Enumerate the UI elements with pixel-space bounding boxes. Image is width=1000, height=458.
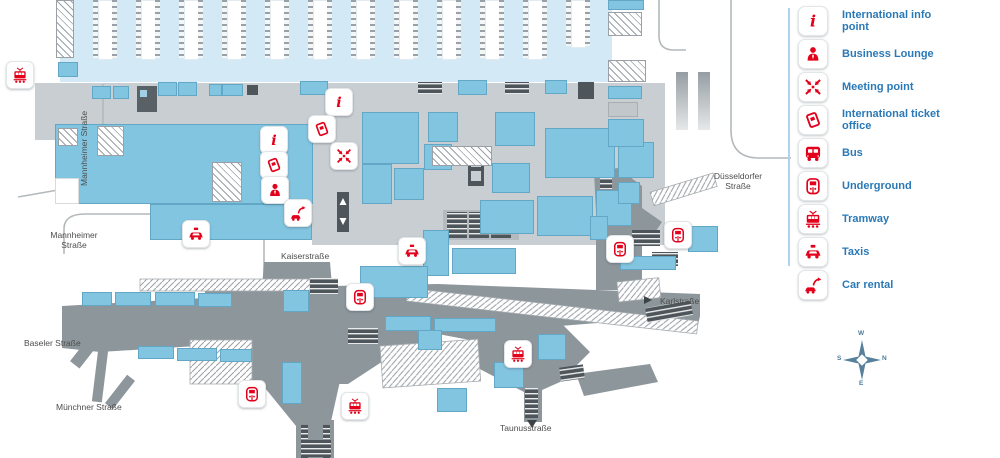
tramway-icon-badge — [504, 340, 532, 368]
platform-strip — [98, 0, 113, 60]
ramp-block — [676, 72, 688, 130]
blue-block — [155, 292, 195, 306]
blue-block — [82, 292, 112, 306]
underground-icon — [611, 240, 629, 258]
rail-track — [284, 0, 289, 58]
taxi-icon — [803, 242, 823, 262]
platform-strip — [184, 0, 199, 60]
blue-block — [92, 86, 111, 99]
rail-track — [585, 0, 590, 46]
blue-block — [608, 86, 642, 99]
info-icon: i — [803, 11, 823, 31]
legend-item-tramway: Tramway — [798, 204, 998, 234]
car-rental-icon — [798, 270, 828, 300]
info-icon-badge: i — [325, 88, 353, 116]
underground-icon — [669, 226, 687, 244]
platform-strip — [356, 0, 371, 60]
tramway-icon — [346, 397, 364, 415]
tramway-icon-badge — [341, 392, 369, 420]
legend-item-underground: Underground — [798, 171, 998, 201]
legend-item-info: iInternational info point — [798, 6, 998, 36]
ticket-office-icon-badge — [260, 151, 288, 179]
blue-block — [608, 119, 644, 147]
meeting-point-icon-badge — [330, 142, 358, 170]
blue-block — [434, 318, 496, 332]
business-lounge-icon — [803, 44, 823, 64]
blue-block — [283, 290, 309, 312]
underground-icon-badge — [606, 235, 634, 263]
platform-strip — [227, 0, 242, 60]
blue-block — [209, 84, 222, 96]
bus-icon — [798, 138, 828, 168]
hatch-block — [58, 128, 78, 146]
street-label: Mannheimer Straße — [44, 231, 104, 250]
blue-block — [437, 388, 467, 412]
bus-icon — [803, 143, 823, 163]
blue-block — [688, 226, 718, 252]
legend-item-label: Business Lounge — [842, 48, 958, 61]
taxi-icon-badge — [398, 237, 426, 265]
compass-bottom: E — [859, 380, 863, 387]
blue-block — [618, 142, 654, 178]
street-label: Taunusstraße — [500, 424, 584, 434]
underground-icon — [351, 288, 369, 306]
rail-track — [499, 0, 504, 58]
platform-label — [84, 60, 126, 68]
ticket-office-icon — [803, 110, 823, 130]
taxi-icon — [187, 225, 205, 243]
hatch-block — [212, 162, 242, 202]
blue-block — [538, 334, 566, 360]
blue-block — [300, 81, 328, 95]
blue-block — [480, 200, 534, 234]
car-rental-icon — [803, 275, 823, 295]
blue-block — [222, 84, 243, 96]
street-label: Karlstraße — [660, 297, 720, 307]
legend-item-bus: Bus — [798, 138, 998, 168]
legend: iInternational info pointBusiness Lounge… — [798, 6, 998, 303]
legend-item-label: International ticket office — [842, 108, 958, 133]
blue-block — [618, 182, 640, 204]
platform-label — [127, 60, 169, 68]
platform-strip — [485, 0, 500, 60]
platform-label — [170, 60, 212, 68]
tramway-icon-badge — [6, 61, 34, 89]
gray-block — [608, 102, 638, 117]
compass-right: N — [882, 355, 887, 362]
blue-block — [545, 80, 567, 94]
tramway-icon — [803, 209, 823, 229]
legend-item-ticket-office: International ticket office — [798, 105, 998, 135]
platform-strip — [313, 0, 328, 60]
underground-icon — [798, 171, 828, 201]
blue-block — [178, 82, 197, 96]
meeting-point-icon — [798, 72, 828, 102]
platform-label — [557, 60, 599, 68]
street-label: Kaiserstraße — [281, 252, 351, 262]
street-label: Düsseldorfer Straße — [708, 172, 768, 191]
platform-strip — [442, 0, 457, 60]
blue-block — [418, 330, 442, 350]
car-rental-icon-badge — [284, 199, 312, 227]
blue-block — [537, 196, 593, 236]
legend-item-taxi: Taxis — [798, 237, 998, 267]
blue-block — [394, 168, 424, 200]
legend-item-label: Taxis — [842, 246, 958, 259]
white-block — [55, 178, 79, 204]
legend-item-label: Underground — [842, 180, 958, 193]
underground-icon-badge — [346, 283, 374, 311]
ticket-office-icon — [265, 156, 283, 174]
ticket-office-icon — [313, 120, 331, 138]
blue-block — [158, 82, 177, 96]
info-icon: i — [265, 131, 283, 149]
street-label: Baseler Straße — [24, 339, 108, 349]
platform-label — [213, 60, 255, 68]
rail-track — [155, 0, 160, 58]
platform-label — [514, 60, 556, 68]
taxi-icon-badge — [182, 220, 210, 248]
info-icon: i — [798, 6, 828, 36]
platform-strip — [528, 0, 543, 60]
blue-block — [458, 80, 487, 95]
legend-divider — [788, 8, 790, 266]
street-label: Mannheimer Straße — [80, 111, 90, 186]
compass-rose: W N S E — [836, 332, 888, 388]
blue-block — [198, 293, 232, 307]
blue-block — [177, 348, 217, 361]
underground-icon-badge — [664, 221, 692, 249]
platform-strip — [571, 0, 586, 48]
platform-label — [299, 60, 341, 68]
meeting-point-icon — [335, 147, 353, 165]
platform-label — [385, 60, 427, 68]
platform-label — [471, 60, 513, 68]
platform-label — [256, 60, 298, 68]
info-icon-badge: i — [260, 126, 288, 154]
ramp-block — [698, 72, 710, 130]
compass-top: W — [858, 330, 864, 337]
blue-block — [492, 163, 530, 193]
platform-label — [342, 60, 384, 68]
legend-item-label: International info point — [842, 9, 958, 34]
platform-strip — [270, 0, 285, 60]
station-map: ii Mannheimer StraßeMannheimer StraßeKai… — [0, 0, 1000, 458]
tramway-icon — [11, 66, 29, 84]
tramway-icon — [798, 204, 828, 234]
blue-block — [590, 216, 608, 240]
blue-block — [608, 0, 644, 10]
legend-item-label: Meeting point — [842, 81, 958, 94]
blue-block — [362, 164, 392, 204]
blue-block — [220, 349, 252, 362]
rail-track — [370, 0, 375, 58]
legend-item-business-lounge: Business Lounge — [798, 39, 998, 69]
underground-icon — [803, 176, 823, 196]
rail-track — [542, 0, 547, 58]
blue-block — [428, 112, 458, 142]
hatch-block — [432, 146, 492, 166]
underground-icon — [243, 385, 261, 403]
hatch-block — [97, 126, 124, 156]
blue-block — [115, 292, 151, 306]
hatch-block — [608, 60, 646, 82]
business-lounge-icon — [266, 181, 284, 199]
rail-track — [327, 0, 332, 58]
blue-block — [545, 128, 615, 178]
platform-strip — [141, 0, 156, 60]
ticket-office-icon-badge — [308, 115, 336, 143]
svg-text:i: i — [271, 133, 276, 149]
compass-left: S — [837, 355, 841, 362]
svg-text:i: i — [810, 11, 816, 30]
legend-item-meeting-point: Meeting point — [798, 72, 998, 102]
rail-track — [413, 0, 418, 58]
legend-item-label: Bus — [842, 147, 958, 160]
blue-block — [138, 346, 174, 359]
car-rental-icon — [289, 204, 307, 222]
hatch-block — [608, 12, 642, 36]
blue-block — [452, 248, 516, 274]
rail-track — [456, 0, 461, 58]
rail-track — [112, 0, 117, 58]
taxi-icon — [403, 242, 421, 260]
blue-block — [362, 112, 419, 164]
blue-block — [58, 62, 78, 77]
svg-text:i: i — [336, 95, 341, 111]
street-label: Münchner Straße — [56, 403, 148, 413]
hatch-block — [56, 0, 74, 58]
rail-track — [241, 0, 246, 58]
meeting-point-icon — [803, 77, 823, 97]
ticket-office-icon — [798, 105, 828, 135]
platform-label — [428, 60, 470, 68]
blue-block — [113, 86, 129, 99]
platform-strip — [399, 0, 414, 60]
underground-icon-badge — [238, 380, 266, 408]
blue-block — [282, 362, 302, 404]
info-icon: i — [330, 93, 348, 111]
blue-block — [495, 112, 535, 146]
blue-block — [385, 316, 431, 331]
business-lounge-icon — [798, 39, 828, 69]
legend-item-car-rental: Car rental — [798, 270, 998, 300]
legend-item-label: Car rental — [842, 279, 958, 292]
taxi-icon — [798, 237, 828, 267]
legend-item-label: Tramway — [842, 213, 958, 226]
rail-track — [198, 0, 203, 58]
tramway-icon — [509, 345, 527, 363]
